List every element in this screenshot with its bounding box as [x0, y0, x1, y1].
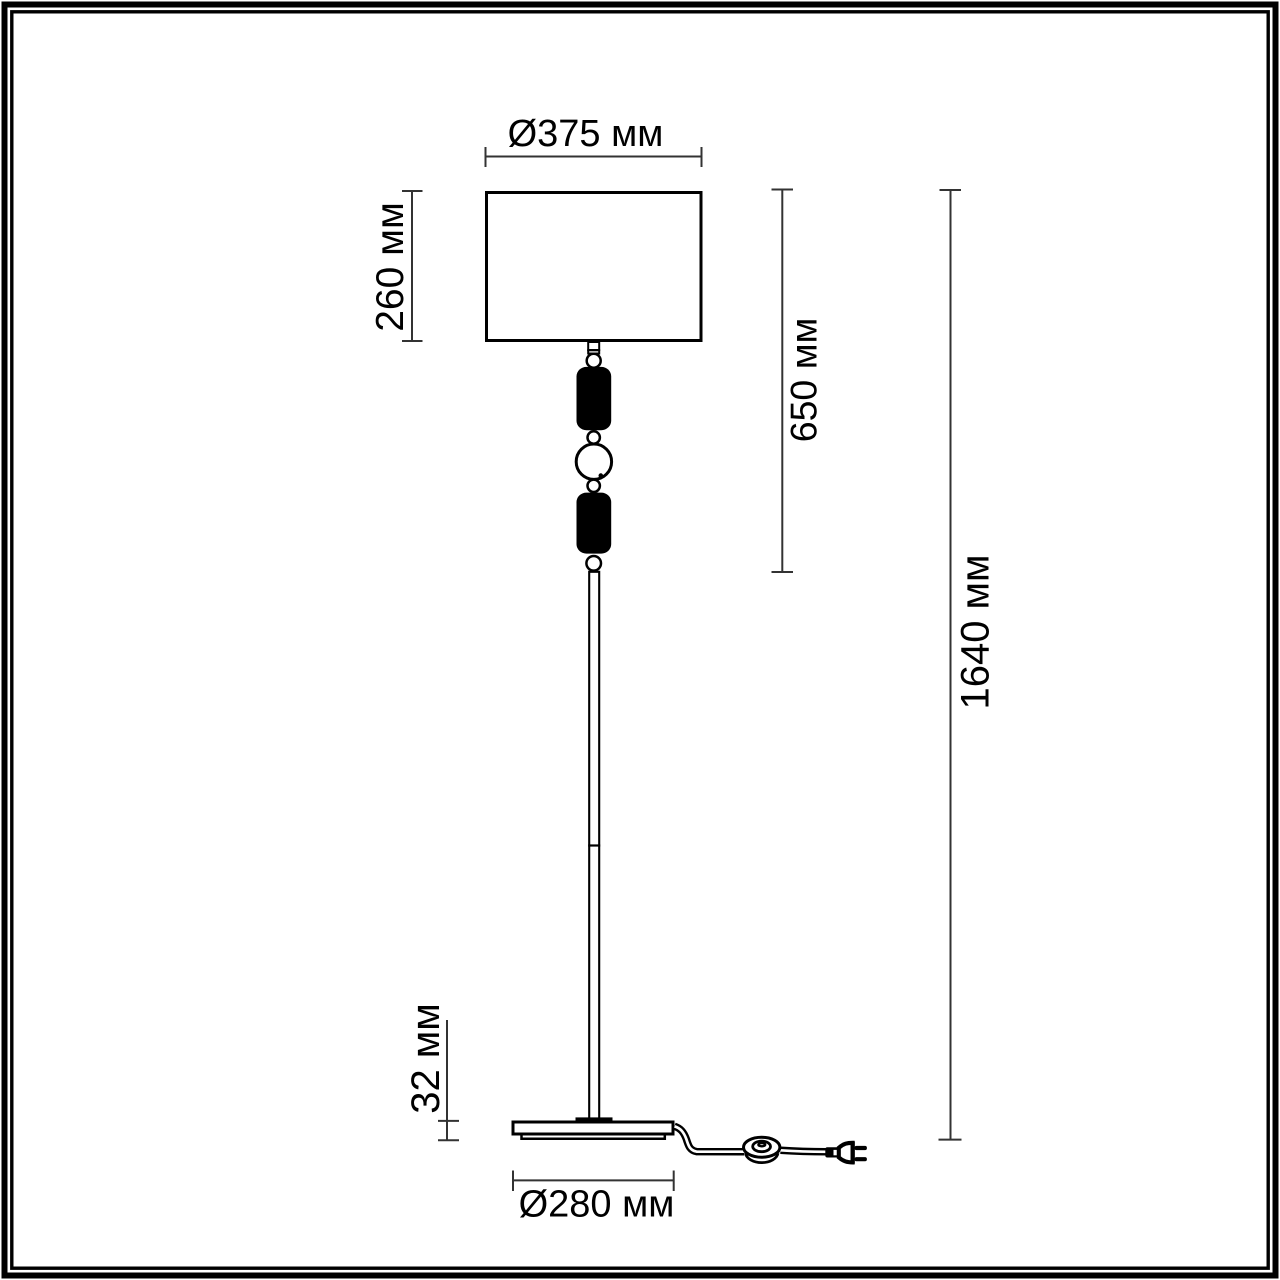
svg-text:650 мм: 650 мм [783, 318, 825, 443]
svg-text:1640 мм: 1640 мм [954, 554, 998, 709]
svg-text:Ø375 мм: Ø375 мм [508, 113, 664, 155]
svg-text:Ø280 мм: Ø280 мм [519, 1184, 675, 1226]
svg-text:32 мм: 32 мм [404, 1003, 448, 1114]
svg-text:260 мм: 260 мм [369, 202, 412, 332]
